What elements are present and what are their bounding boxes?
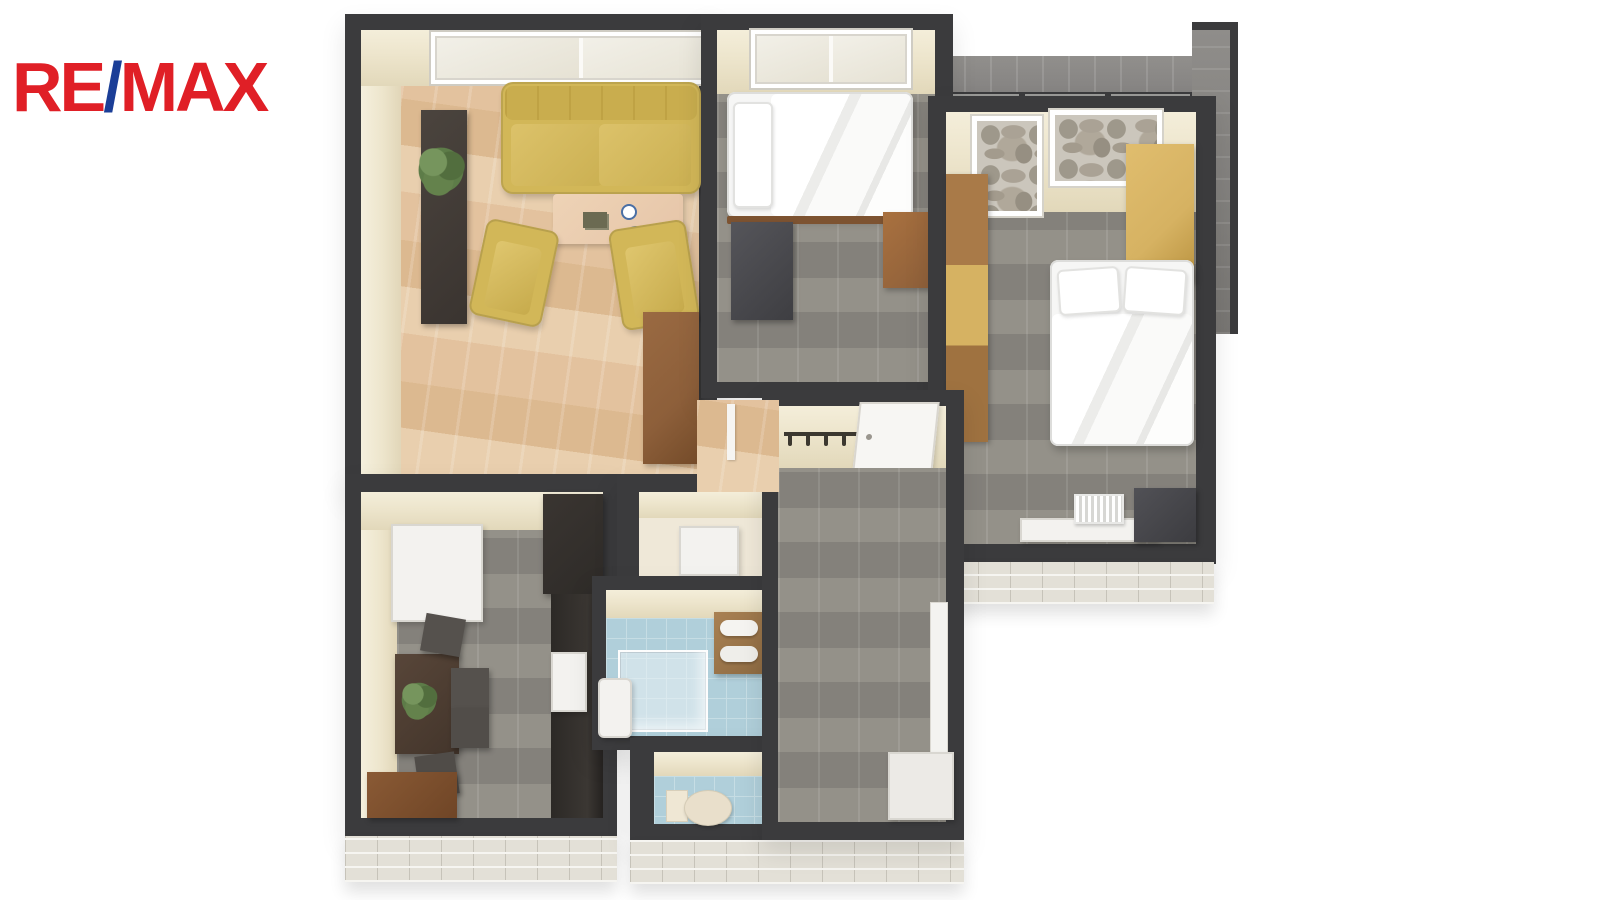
single-bed [727,92,913,218]
plant [415,144,467,196]
bookshelf [643,312,699,464]
room-bathroom [592,576,780,750]
page: RE/MAX [0,0,1600,900]
exterior-brick-wall [946,562,1214,604]
living-room-window [431,32,731,84]
coat-hook [806,436,810,446]
radiator [1074,494,1124,524]
doorway-opening [697,400,779,492]
wall-face [361,86,401,474]
double-bed [1050,260,1194,446]
pillow [1122,266,1187,316]
room-living-room [345,14,717,492]
coat-hook [788,436,792,446]
coat-hook [842,436,846,446]
fridge [391,524,483,622]
sideboard [421,110,467,324]
bedroom-window [751,30,911,88]
entry-door [852,402,939,472]
room-wc [630,738,780,842]
plant [399,680,439,720]
room-kitchen [345,474,617,838]
lower-cabinet [367,772,457,818]
sofa-back [505,86,697,120]
armchair-seat [624,240,685,319]
shoe-cabinet [888,752,954,820]
open-door-leaf [727,404,735,460]
washer [679,526,739,576]
window-pane [757,36,829,82]
door-handle [866,434,873,440]
pillow [733,102,773,208]
towels [720,646,758,662]
room-bedroom-small [701,14,953,398]
room-bedroom-main [928,96,1216,564]
towel-cabinet [714,612,764,674]
exterior-brick-wall [630,840,964,884]
toilet [684,790,732,826]
exterior-brick-wall [345,836,617,882]
dining-chair [451,668,489,708]
sink [598,678,632,738]
book [583,212,607,228]
towels [720,620,758,636]
duvet [771,94,911,216]
dishwasher [551,652,587,712]
cabinet [1134,488,1196,542]
hallway [762,390,964,840]
pillow [1056,266,1121,316]
coat-hook [824,436,828,446]
sofa [501,82,701,194]
dining-chair [451,708,489,748]
window-pane [833,36,905,82]
cup [621,204,637,220]
duvet [1052,314,1192,444]
wall-face [639,492,764,518]
sofa-cushion [599,124,691,186]
window-pane [437,38,579,78]
wall-face [654,752,764,776]
sofa-cushion [511,124,603,186]
dining-chair [420,613,466,657]
armchair-seat [483,240,542,316]
tv-stand [731,222,793,320]
floor-plan [0,0,1600,900]
interior-door [930,602,948,754]
